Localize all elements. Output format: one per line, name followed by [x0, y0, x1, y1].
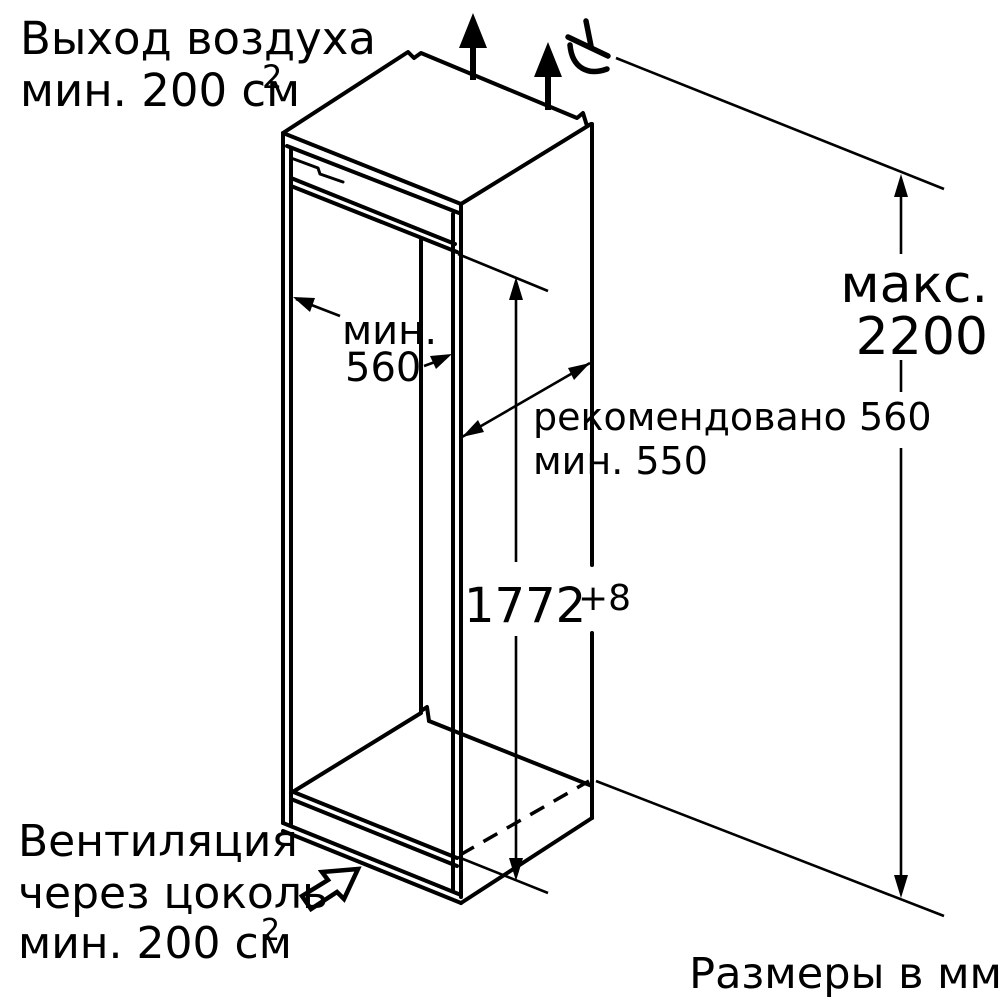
plinth-vent-value: мин. 200 см — [18, 918, 292, 969]
floor-front-edge-outer — [291, 791, 457, 858]
annotation-max-height: макс. 2200 — [840, 255, 988, 367]
niche-width-value: 560 — [345, 345, 421, 391]
air-outlet-label: Выход воздуха — [20, 12, 376, 65]
installation-diagram: Выход воздуха мин. 200 см 2 мин. 560 рек… — [0, 0, 1000, 1000]
floor-left-junction — [291, 713, 421, 793]
plinth-vent-label-2: через цоколь — [18, 868, 328, 919]
extension-lines — [458, 58, 944, 916]
vent-arrow-icon — [459, 13, 487, 48]
floor-front-edge-inner — [291, 799, 457, 866]
max-height-label: макс. — [840, 255, 988, 315]
niche-ceiling-edge-outer — [291, 178, 455, 244]
niche-height-tolerance: +8 — [578, 578, 631, 619]
annotation-niche-height: 1772 +8 — [464, 578, 631, 634]
air-outlet-value: мин. 200 см — [20, 64, 300, 117]
arrowhead-left-icon — [293, 297, 315, 312]
floor-hidden-side-edge — [460, 781, 589, 855]
arrowhead-down-left-icon — [462, 420, 484, 437]
plinth-vent-label-1: Вентиляция — [18, 816, 298, 867]
air-outlet-superscript: 2 — [262, 58, 282, 96]
niche-depth-minimum: мин. 550 — [533, 439, 708, 483]
max-height-value: 2200 — [856, 307, 988, 367]
ground-extension-line — [596, 781, 944, 916]
top-vent-arrows — [459, 13, 562, 110]
floor-extension-line — [458, 857, 548, 893]
niche-depth-recommended: рекомендовано 560 — [533, 395, 932, 439]
annotation-air-outlet: Выход воздуха мин. 200 см 2 — [20, 12, 376, 117]
arrowhead-right-icon — [430, 354, 452, 369]
vent-gap-back-edge — [291, 158, 343, 182]
side-panel-bottom-edge — [461, 818, 592, 903]
niche-drawing-canvas: Выход воздуха мин. 200 см 2 мин. 560 рек… — [0, 0, 1000, 1000]
room-ceiling-line — [616, 58, 944, 189]
arrowhead-up-icon — [894, 174, 908, 197]
annotation-niche-depth: рекомендовано 560 мин. 550 — [533, 395, 932, 483]
ceiling-extension-line — [458, 254, 548, 291]
plinth-vent-superscript: 2 — [261, 913, 280, 948]
vent-arrow-icon — [534, 42, 562, 77]
arrowhead-up-right-icon — [568, 363, 590, 380]
power-socket-icon — [568, 21, 608, 71]
niche-ceiling-edge-inner — [291, 186, 457, 252]
niche-height-value: 1772 — [464, 578, 586, 634]
top-panel-front-edge — [287, 146, 459, 213]
units-note: Размеры в мм — [689, 949, 1000, 999]
arrowhead-down-icon — [894, 875, 908, 898]
annotation-plinth-vent: Вентиляция через цоколь мин. 200 см 2 — [18, 816, 328, 969]
